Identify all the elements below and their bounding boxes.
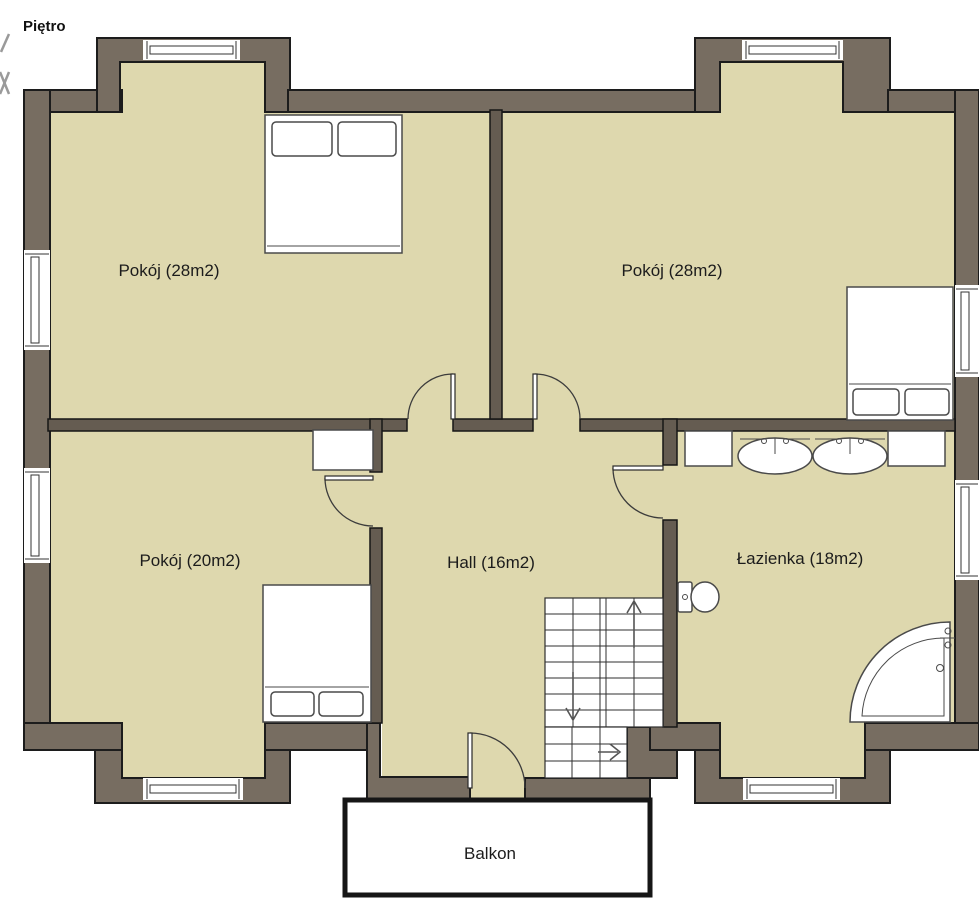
pillow <box>905 389 949 415</box>
toilet-tank <box>678 582 692 612</box>
wall-left <box>24 90 50 750</box>
wall-int-horizontal-mid <box>453 419 533 431</box>
sink-left[interactable] <box>738 438 812 474</box>
bed-room20[interactable] <box>263 585 371 722</box>
window-bay-top-left[interactable] <box>143 40 240 60</box>
door-leaf <box>613 466 663 470</box>
wall-bottom-left <box>24 723 122 750</box>
sink-right[interactable] <box>813 438 887 474</box>
window-glass <box>150 46 233 54</box>
door-leaf <box>533 374 537 419</box>
edge-artifact <box>0 34 9 94</box>
window-left-2[interactable] <box>24 468 50 563</box>
bed-room-top-right[interactable] <box>847 287 953 420</box>
window-glass <box>961 487 969 573</box>
bathroom-cabinet-left[interactable] <box>685 431 732 466</box>
floor-bay-top-left[interactable] <box>120 60 265 112</box>
wall-int-bath-lower <box>663 520 677 727</box>
wall-right <box>955 90 979 750</box>
pillow <box>272 122 332 156</box>
cabinet-room20[interactable] <box>313 430 373 470</box>
room-label-room20: Pokój (20m2) <box>139 551 240 570</box>
window-right-2[interactable] <box>955 480 979 580</box>
wall-bottom-room20 <box>265 723 380 750</box>
window-glass <box>150 785 236 793</box>
room-label-top-right: Pokój (28m2) <box>621 261 722 280</box>
floor-bay-bottom-right[interactable] <box>720 723 865 778</box>
wall-int-horizontal-left <box>48 419 407 431</box>
room-label-top-left: Pokój (28m2) <box>118 261 219 280</box>
door-leaf <box>451 374 455 419</box>
window-glass <box>961 292 969 370</box>
room-label-balcony: Balkon <box>464 844 516 863</box>
wall-bath-bottom-right <box>865 723 979 750</box>
pillow <box>853 389 899 415</box>
wall-top-center <box>288 90 697 112</box>
pillow <box>319 692 363 716</box>
window-right-1[interactable] <box>955 285 979 377</box>
wall-int-horizontal-right <box>580 419 955 431</box>
window-bay-bottom-right[interactable] <box>743 778 840 800</box>
page-title: Piętro <box>23 18 66 35</box>
window-glass <box>31 257 39 343</box>
room-label-bathroom: Łazienka (18m2) <box>737 549 864 568</box>
wall-int-bath-upper <box>663 419 677 465</box>
wall-hall-bottom-right <box>525 778 650 800</box>
wall-int-room20-lower <box>370 528 382 723</box>
window-glass <box>750 785 833 793</box>
floorplan-canvas: Piętro Pokój (28m2) Pokój (28m2) Pokój (… <box>0 0 979 901</box>
window-glass <box>749 46 836 54</box>
floor-balcony-passage[interactable] <box>470 777 525 800</box>
room-label-hall: Hall (16m2) <box>447 553 535 572</box>
door-leaf <box>325 476 373 480</box>
toilet-bowl <box>691 582 719 612</box>
window-left-1[interactable] <box>24 250 50 350</box>
bed-room-top-left[interactable] <box>265 115 402 253</box>
edge-artifact-mark <box>1 34 9 52</box>
pillow <box>271 692 314 716</box>
toilet[interactable] <box>678 582 719 612</box>
window-glass <box>31 475 39 556</box>
window-bay-bottom-left[interactable] <box>143 778 243 800</box>
floor-bay-bottom-left[interactable] <box>122 723 265 778</box>
door-leaf <box>468 733 472 788</box>
wall-int-room-divider <box>490 110 502 419</box>
window-bay-top-right[interactable] <box>742 40 843 60</box>
floorplan-svg: Piętro Pokój (28m2) Pokój (28m2) Pokój (… <box>0 0 979 901</box>
floor-bay-top-right[interactable] <box>720 62 843 112</box>
pillow <box>338 122 396 156</box>
bathroom-cabinet-right[interactable] <box>888 431 945 466</box>
